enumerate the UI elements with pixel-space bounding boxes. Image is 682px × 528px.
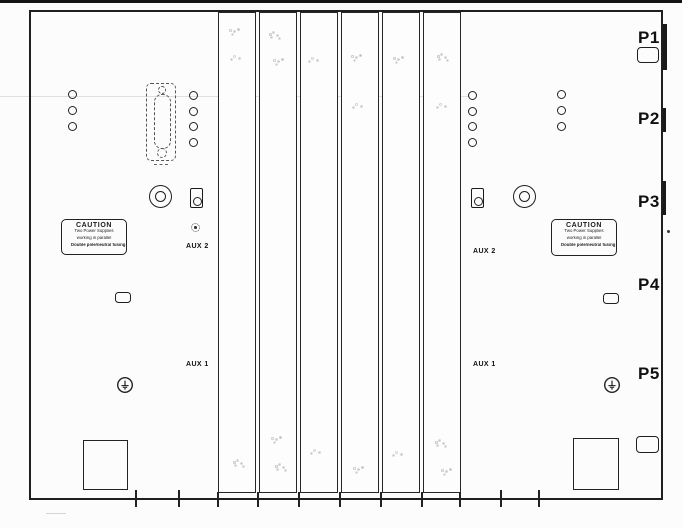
led-indicator-icon: [193, 197, 202, 206]
caution-label: CAUTION Two Power Supplies working in pa…: [61, 219, 127, 255]
rounded-cutout: [636, 436, 659, 453]
mounting-hole-column: [68, 90, 77, 131]
scan-speckle: [356, 104, 357, 105]
port-label-p3: P3: [638, 192, 660, 212]
dsub-connector-inner-icon: [154, 94, 171, 149]
dsub-hidden-line-icon: [154, 164, 168, 165]
mounting-hole: [68, 122, 77, 131]
led-indicator-icon: [474, 197, 483, 206]
dsub-connector-hidden-outline-icon: [146, 83, 176, 161]
power-connector-icon: [149, 185, 172, 208]
rounded-cutout: [637, 47, 659, 63]
module-slot: [341, 12, 379, 493]
aux2-label: AUX 2: [186, 243, 209, 250]
scan-speckle: [442, 470, 443, 471]
port-label-p5: P5: [638, 364, 660, 384]
mounting-hole: [68, 90, 77, 99]
scan-speckle: [274, 60, 275, 61]
led-indicator-holder: [190, 188, 203, 208]
scan-mark-artifact: [46, 513, 66, 514]
power-connector-pin-icon: [519, 191, 530, 202]
scan-speckle: [438, 56, 439, 57]
caution-text-line: working in parallel: [71, 236, 117, 241]
module-bank: [218, 12, 461, 493]
scan-speckle: [352, 56, 353, 57]
caution-title: CAUTION: [552, 222, 616, 229]
tick-mark: [459, 492, 461, 507]
tick-mark: [380, 492, 382, 507]
scan-speckle: [276, 466, 277, 467]
power-connector-icon: [513, 185, 536, 208]
mounting-hole-column: [189, 91, 198, 147]
mounting-hole: [557, 90, 566, 99]
scan-speckle: [396, 452, 397, 453]
scan-speckle: [436, 442, 437, 443]
module-slot: [259, 12, 297, 493]
tick-mark: [298, 492, 300, 507]
scan-top-edge-artifact: [0, 0, 682, 3]
tick-mark: [538, 490, 540, 507]
aux1-label: AUX 1: [186, 361, 209, 368]
pill-cutout: [115, 292, 131, 303]
panel-drawing-scan: AUX 2 AUX 1 CAUTION Two Power Supplies w…: [0, 0, 682, 528]
port-label-p1: P1: [638, 28, 660, 48]
mounting-hole: [189, 91, 198, 100]
led-indicator-holder: [471, 188, 484, 208]
indicator-dot-icon: [191, 223, 200, 232]
square-cutout: [83, 440, 128, 490]
scan-speckle: [272, 438, 273, 439]
module-slot: [300, 12, 338, 493]
caution-text-line: Double pole/neutral fusing: [561, 243, 607, 248]
mounting-hole: [189, 107, 198, 116]
scan-speckle: [354, 468, 355, 469]
caution-label: CAUTION Two Power Supplies working in pa…: [551, 219, 617, 256]
scan-dot-artifact: [667, 230, 670, 233]
mounting-hole: [557, 106, 566, 115]
module-slot: [382, 12, 420, 493]
port-label-p4: P4: [638, 275, 660, 295]
mounting-hole-column: [557, 90, 566, 131]
mounting-hole: [468, 91, 477, 100]
dsub-screw-hole-icon: [158, 86, 166, 94]
caution-text-line: working in parallel: [561, 236, 607, 241]
mounting-hole: [189, 138, 198, 147]
mounting-hole: [557, 122, 566, 131]
mounting-hole: [468, 138, 477, 147]
scan-speckle: [234, 56, 235, 57]
tick-mark: [500, 490, 502, 507]
square-cutout: [573, 438, 619, 490]
scan-speckle: [440, 104, 441, 105]
caution-text-line: Two Power Supplies: [71, 229, 117, 234]
scan-speckle: [234, 462, 235, 463]
aux2-label: AUX 2: [473, 248, 496, 255]
pill-cutout: [603, 293, 619, 304]
caution-title: CAUTION: [62, 222, 126, 229]
mounting-hole: [468, 122, 477, 131]
ground-symbol-icon: [116, 376, 134, 394]
tick-mark: [339, 492, 341, 507]
mounting-hole: [468, 107, 477, 116]
dsub-screw-hole-icon: [157, 148, 167, 158]
module-slot: [218, 12, 256, 493]
scan-speckle: [230, 30, 231, 31]
mounting-hole: [68, 106, 77, 115]
module-slot: [423, 12, 461, 493]
caution-text-line: Double pole/neutral fusing: [71, 243, 117, 248]
scan-speckle: [270, 34, 271, 35]
tick-mark: [135, 490, 137, 507]
caution-text-line: Two Power Supplies: [561, 229, 607, 234]
scan-speckle: [312, 58, 313, 59]
scan-speckle: [394, 58, 395, 59]
scan-speckle: [314, 450, 315, 451]
tick-mark: [257, 492, 259, 507]
tick-mark: [178, 490, 180, 507]
mounting-hole: [189, 122, 198, 131]
power-connector-pin-icon: [155, 191, 166, 202]
tick-mark: [217, 492, 219, 507]
ground-symbol-icon: [603, 376, 621, 394]
tick-mark: [421, 492, 423, 507]
mounting-hole-column: [468, 91, 477, 147]
aux1-label: AUX 1: [473, 361, 496, 368]
port-label-p2: P2: [638, 109, 660, 129]
